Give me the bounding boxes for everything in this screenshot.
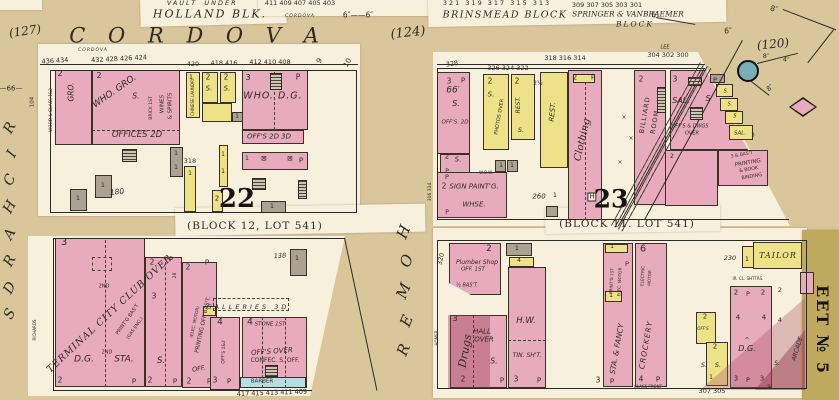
map-label: D: [1, 280, 19, 296]
map-label: 3: [514, 375, 519, 383]
map-label: 2: [206, 73, 211, 81]
map-label: 2ND: [102, 351, 113, 356]
map-label: WINES: [160, 95, 166, 113]
map-label: O: [398, 252, 417, 269]
map-label: 2: [573, 75, 577, 82]
map-label: & SPIRITS: [168, 93, 174, 120]
map-label: ×: [621, 115, 626, 121]
map-label: P: [445, 169, 449, 175]
map-label: P: [296, 73, 301, 81]
map-label: 2: [57, 70, 62, 78]
map-label: S: [733, 115, 736, 120]
map-label: 2: [58, 376, 63, 384]
map-label: 436 434: [41, 57, 68, 65]
map-label: P: [461, 78, 465, 85]
map-label: BLOCK: [616, 20, 654, 28]
map-label: P: [205, 260, 209, 267]
map-label: 1: [221, 152, 225, 158]
map-label: 2: [96, 72, 101, 80]
map-label: 3: [596, 376, 601, 384]
map-label: P: [445, 210, 449, 216]
map-label: 411 409 407 405 403: [265, 0, 335, 6]
map-label: 2: [224, 73, 229, 81]
map-label: 2: [187, 377, 192, 385]
barber-shop-label: BARBER: [251, 379, 273, 385]
street-line: [783, 9, 837, 30]
map-label: 3: [767, 384, 771, 391]
block-11-lot-541-label: (BLOCK 11. LOT 541): [559, 219, 695, 230]
map-label: CORDOVA: [78, 49, 108, 54]
map-label: 1: [221, 169, 225, 175]
building: [508, 267, 546, 388]
map-label: UNDER: [204, 0, 237, 6]
map-label: W.O.W.: [479, 171, 493, 175]
stair-hatch-icon: [298, 180, 307, 199]
street-line: [437, 68, 438, 219]
street-name-richards: R: [1, 120, 18, 136]
map-label: S.: [452, 100, 460, 108]
springer-vanbraemer-block-label: SPRINGER & VANBRAEMER: [572, 10, 684, 18]
map-label: OFFICES 2D: [112, 131, 162, 140]
map-label: S.: [224, 86, 231, 93]
map-label: 3: [673, 75, 678, 83]
stair-hatch-icon: [122, 149, 137, 162]
map-label: P: [132, 379, 136, 386]
map-label: 304 302 300: [647, 52, 688, 59]
paper-piece: [0, 0, 42, 10]
map-label: 1: [553, 192, 557, 199]
tailor-shop-label: TAILOR: [759, 252, 797, 260]
map-label: P: [625, 261, 629, 268]
map-label: STA.: [114, 356, 134, 365]
street-line: [807, 29, 834, 63]
map-label: BRICK 1ST: [150, 96, 155, 120]
map-label: P: [713, 77, 717, 84]
map-label: ½ BAS'T.: [456, 284, 478, 289]
map-label: 318 316 314: [544, 55, 585, 62]
map-label: 8″: [765, 83, 774, 92]
map-label: S.: [206, 86, 213, 93]
street-name-cordova: C O R D O V A: [69, 26, 327, 47]
building: [605, 244, 628, 253]
ref-number-124: (124): [390, 25, 426, 42]
map-label: 417 415 413 411 409: [237, 389, 307, 398]
map-label: 2: [670, 153, 674, 160]
holland-block-label: HOLLAND BLK.: [153, 9, 267, 20]
map-label: OFF'S 1&2: [222, 340, 227, 364]
map-label: R: [1, 253, 18, 269]
map-label: 4: [517, 258, 521, 264]
building: [546, 206, 558, 217]
map-label: P: [207, 379, 211, 386]
map-label: P: [746, 377, 750, 384]
saloon-label: SAL.: [672, 97, 690, 105]
map-label: 2: [148, 376, 153, 384]
map-label: S: [2, 306, 19, 321]
map-label: 3: [452, 315, 457, 323]
diamond-marker-icon: [789, 97, 817, 117]
map-label: 3: [447, 77, 452, 85]
map-label: OFF'S: [697, 327, 708, 331]
plumber-shop-label: Plumber Shop: [456, 260, 498, 266]
map-label: S.: [728, 103, 733, 108]
map-label: —66—: [0, 86, 22, 93]
map-label: P: [656, 377, 660, 384]
street-line: [806, 240, 807, 388]
map-label: E: [398, 313, 416, 329]
map-label: 1: [188, 171, 192, 177]
map-label: 3: [734, 376, 738, 383]
map-label: 4: [217, 319, 223, 328]
map-label: 2: [486, 245, 491, 254]
street-line: [437, 68, 705, 69]
map-label: CORDOVA: [285, 15, 315, 20]
map-label: S.: [455, 157, 462, 164]
map-label: 6″: [651, 11, 659, 19]
map-label: C: [1, 172, 18, 188]
sign-painting-label: SIGN PAINT'G.: [449, 184, 498, 191]
map-label: CONFEC. S. OFF.: [251, 358, 300, 364]
map-label: 2½: [533, 81, 543, 87]
fire-insurance-map: (127)VAULTUNDERHOLLAND BLK.411 409 407 4…: [0, 0, 839, 400]
map-label: S.: [132, 92, 139, 100]
map-label: 2: [461, 375, 466, 383]
map-label: P: [227, 379, 231, 386]
street-line: [53, 238, 345, 239]
street-line: [344, 238, 378, 391]
map-label: 2: [639, 75, 644, 83]
map-label: 4: [639, 375, 644, 383]
map-label: OFF'S 2D 3D: [247, 134, 291, 141]
map-label: 316 314: [429, 183, 434, 202]
diamond-marker-inner: [791, 99, 815, 115]
map-label: MOTOR: [647, 270, 652, 286]
street-line: [437, 240, 807, 241]
map-label: 3: [152, 292, 157, 300]
map-label: 2: [488, 77, 493, 85]
map-label: S.: [724, 90, 729, 95]
map-label: LEE: [660, 46, 669, 51]
map-label: S: [705, 95, 710, 103]
map-label: S.: [701, 362, 707, 369]
map-label: 318: [184, 158, 196, 165]
map-label: P: [537, 378, 541, 385]
street-line: [437, 388, 807, 389]
map-label: 1: [515, 245, 519, 252]
map-label: VAULT: [167, 0, 197, 6]
map-label: GRO.: [67, 82, 75, 101]
map-label: SAL.: [734, 131, 746, 137]
map-label: P: [591, 75, 595, 82]
brinsmead-block-label: BRINSMEAD BLOCK: [443, 10, 568, 20]
map-label: 1: [270, 203, 274, 210]
map-label: OFF'S. 2D: [442, 120, 469, 126]
map-label: ⊠: [261, 156, 267, 163]
sheet-number-5-label: EET № 5: [814, 285, 830, 375]
lot-line-dashed: [508, 340, 546, 341]
map-label: 2: [442, 182, 447, 190]
map-label: HOMER: [435, 331, 439, 346]
street-line: [437, 64, 705, 65]
elevator-hatch-icon: [690, 107, 703, 120]
map-label: 1: [709, 375, 713, 381]
map-label: P: [746, 291, 750, 298]
map-label: 418 416: [211, 60, 238, 67]
map-label: 307 305: [699, 388, 726, 395]
map-label: 1: [499, 163, 503, 169]
drygoods-store-label: D.G.: [74, 356, 94, 365]
map-label: 4: [762, 315, 766, 322]
map-label: 2ND: [99, 285, 110, 290]
map-label: A: [1, 226, 18, 242]
map-label: H: [1, 198, 19, 215]
map-label: 1: [510, 163, 514, 169]
map-label: 2: [778, 287, 782, 294]
map-label: OVER: [685, 132, 699, 137]
lot-line-dashed: [165, 257, 166, 387]
map-label: WHSE.: [462, 202, 485, 209]
map-label: 1: [235, 114, 239, 120]
map-label: P: [169, 257, 173, 264]
map-label: 2: [515, 77, 520, 85]
lot-line-dashed: [473, 315, 474, 388]
map-label: 66′: [446, 87, 460, 96]
map-label: S.: [774, 361, 780, 367]
map-label: 260: [532, 194, 545, 201]
map-label: 3: [245, 74, 250, 82]
map-label: 230: [724, 255, 736, 262]
chimney-hatch-icon: [657, 87, 666, 113]
map-label: 2: [703, 314, 707, 321]
map-label: STONE 1ST: [255, 322, 286, 328]
map-label: 3: [213, 376, 218, 384]
map-label: 1: [609, 293, 613, 299]
map-label: 328: [445, 60, 458, 68]
building: [509, 257, 534, 267]
map-label: 1: [76, 195, 80, 202]
map-label: S.: [157, 357, 165, 366]
map-label: OVER: [474, 337, 494, 344]
map-label: ×: [628, 136, 633, 142]
map-label: 4: [736, 315, 740, 322]
map-label: 4: [247, 319, 253, 328]
map-label: S.: [488, 92, 495, 99]
map-label: 2: [734, 290, 738, 297]
map-label: S.: [715, 362, 721, 369]
water-tank-icon: [737, 60, 759, 82]
map-label: R: [395, 342, 413, 358]
map-label: 6: [640, 244, 646, 254]
map-label: 2: [150, 258, 155, 266]
map-label: P: [299, 158, 303, 165]
map-label: P: [500, 378, 504, 385]
map-label: 1: [245, 155, 249, 162]
map-label: IR. CL. SHTTRS.: [733, 277, 764, 281]
map-label: OFF'S & DWGS: [671, 125, 708, 130]
skylight-dashed-outline: [92, 257, 112, 271]
map-label: 3: [61, 238, 67, 248]
block-number-22: 22: [219, 186, 255, 212]
map-label: TIN. SH'T.: [513, 353, 542, 359]
map-label: ×: [617, 160, 622, 166]
map-label: 326 324 322: [487, 65, 528, 72]
map-label: CHINESE LAUNDRY: [191, 78, 195, 116]
block-12-lot-541-label: (BLOCK 12, LOT 541): [187, 221, 323, 232]
stair-hatch-icon: [265, 365, 278, 377]
block-22-outline: [50, 70, 357, 213]
map-label: 6″——6″: [343, 11, 373, 19]
map-label: 104: [30, 97, 36, 108]
map-label: M: [394, 281, 414, 301]
map-label: 1: [610, 244, 614, 250]
map-label: 3: [760, 376, 764, 383]
map-label: 4″: [782, 56, 790, 64]
map-label: 412 410 408: [249, 59, 290, 66]
map-label: 2: [186, 263, 191, 271]
map-label: 8″: [769, 4, 778, 13]
map-label: 8″: [763, 53, 770, 60]
map-label: OFF. 1ST: [461, 267, 485, 273]
map-label: 4: [778, 317, 782, 324]
map-label: 1: [295, 255, 299, 262]
wholesale-drygoods-label: WHO. D.G.: [243, 91, 302, 101]
map-label: S.: [490, 357, 497, 365]
ref-number-120: (120): [756, 36, 789, 51]
map-label: 6″: [724, 27, 732, 35]
map-label: P: [610, 379, 614, 386]
map-label: P: [173, 379, 177, 386]
map-label: REST.: [516, 97, 522, 114]
map-label: GLASS FRONT: [634, 385, 662, 389]
map-label: 180: [109, 188, 124, 197]
map-label: 321 319 317 315 313: [443, 0, 551, 6]
map-label: 2: [713, 344, 717, 351]
map-label: 309 307 305 303 301: [572, 2, 642, 9]
map-label: 2: [761, 290, 765, 297]
ref-number-127: (127): [8, 23, 42, 39]
map-label: 420: [187, 61, 199, 68]
map-label: D.G.: [738, 345, 755, 353]
hall-label: HALL: [473, 329, 491, 336]
map-label: 1: [101, 182, 105, 189]
map-label: WOOD & GLASS 1&2: [49, 88, 53, 132]
hardware-store-label: H.W.: [516, 317, 536, 326]
block-number-23: 23: [594, 187, 629, 212]
map-label: 138: [274, 252, 287, 260]
map-label: 3: [751, 133, 755, 139]
map-label: RICHARDS: [33, 320, 37, 341]
map-label: ⊠: [287, 156, 293, 163]
chimney-hatch-icon: [270, 73, 282, 90]
map-label: 1: [174, 151, 178, 157]
map-label: 1: [174, 165, 178, 171]
building: [483, 74, 509, 150]
map-label: GALLERIES 3D: [207, 304, 290, 311]
map-label: S.: [518, 127, 524, 134]
map-label: I: [5, 148, 20, 159]
map-label: 1: [745, 256, 749, 263]
map-label: 2: [445, 154, 449, 161]
map-label: 28′: [174, 272, 179, 279]
